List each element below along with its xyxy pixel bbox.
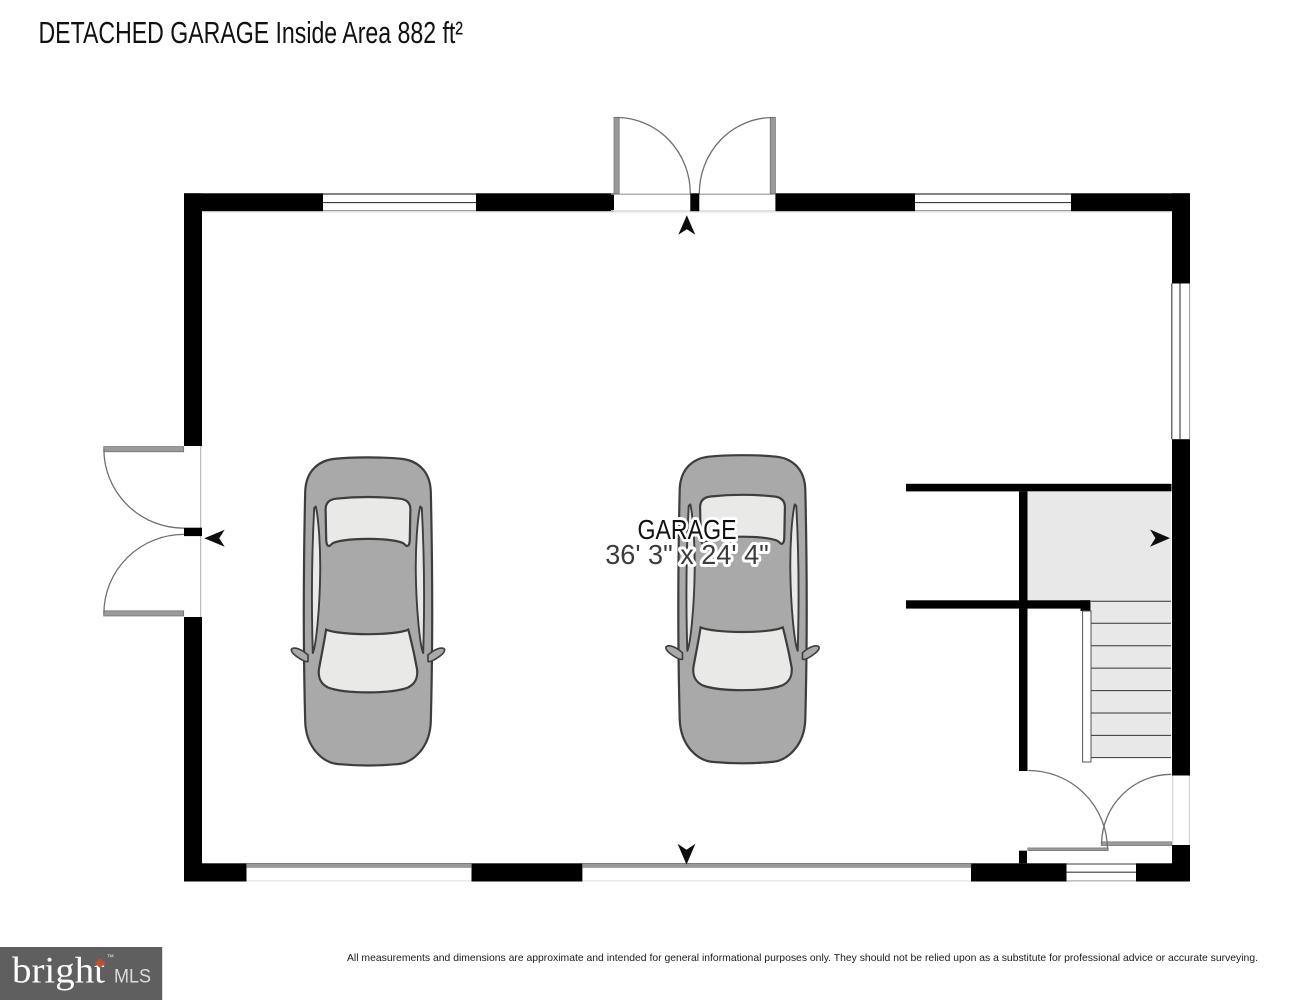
svg-text:MLS: MLS: [114, 967, 151, 988]
svg-text:All measurements and dimension: All measurements and dimensions are appr…: [347, 952, 1258, 964]
svg-text:bright: bright: [12, 950, 106, 991]
svg-text:™: ™: [107, 953, 115, 962]
svg-text:DETACHED GARAGE Inside Area 88: DETACHED GARAGE Inside Area 882 ft²: [39, 15, 464, 50]
svg-text:36' 3" x 24' 4": 36' 3" x 24' 4": [605, 539, 769, 570]
